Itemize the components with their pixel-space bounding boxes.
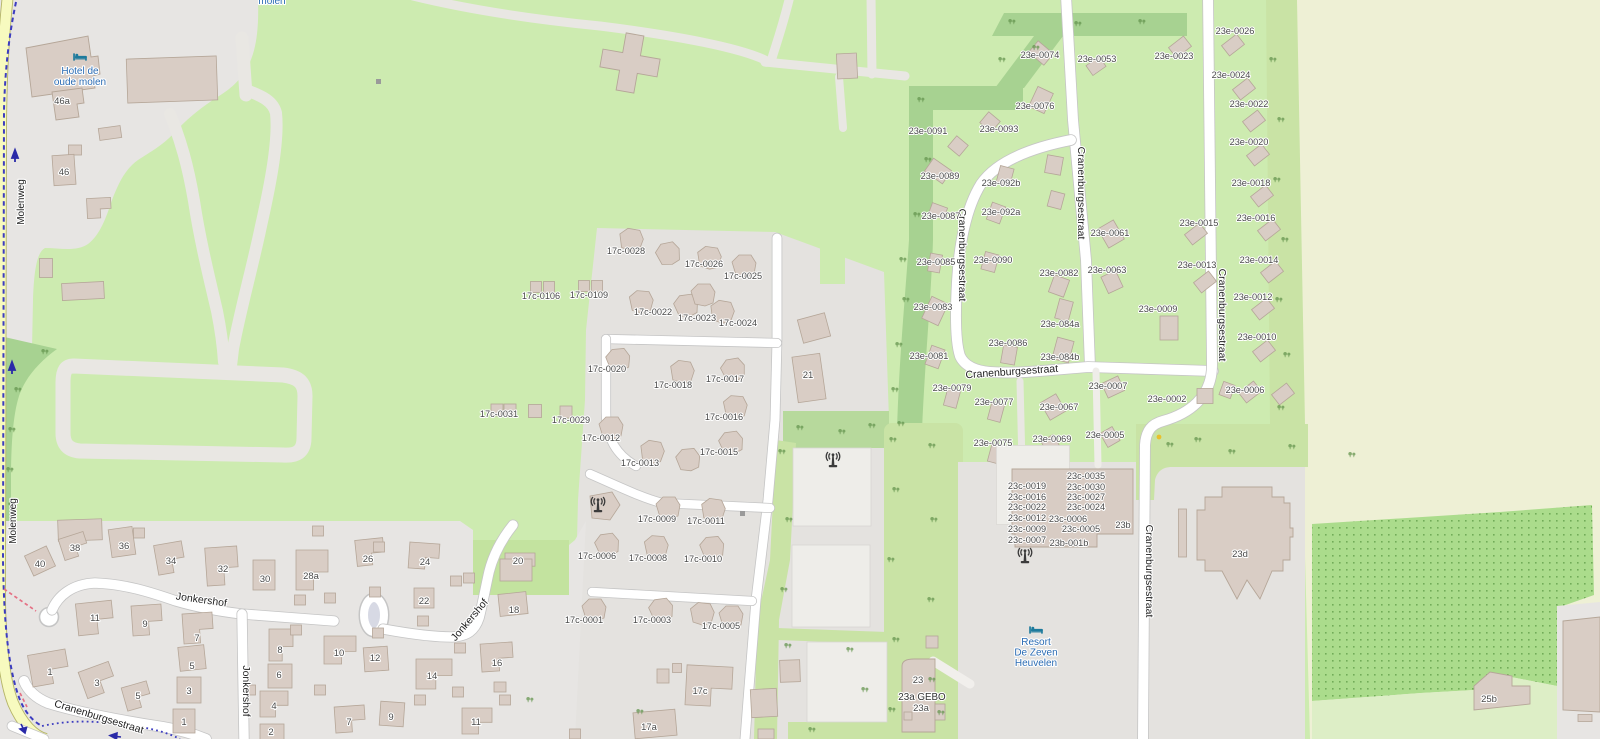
svg-text:1: 1 <box>181 717 186 728</box>
svg-text:24: 24 <box>420 557 431 568</box>
svg-text:23e-0053: 23e-0053 <box>1078 54 1117 64</box>
svg-text:38: 38 <box>70 543 81 554</box>
svg-text:17a: 17a <box>641 721 657 732</box>
svg-text:23e-0012: 23e-0012 <box>1234 292 1273 302</box>
svg-text:23c-0012: 23c-0012 <box>1008 513 1046 523</box>
svg-text:23e-0076: 23e-0076 <box>1016 101 1055 111</box>
svg-text:23e-084b: 23e-084b <box>1041 352 1080 362</box>
svg-text:9: 9 <box>142 619 147 630</box>
svg-text:17c-0031: 17c-0031 <box>480 409 518 419</box>
svg-text:23c-0005: 23c-0005 <box>1062 524 1100 534</box>
svg-text:23e-092a: 23e-092a <box>982 207 1022 217</box>
svg-text:12: 12 <box>370 653 381 664</box>
svg-text:23e-0020: 23e-0020 <box>1230 137 1269 147</box>
svg-text:23e-0024: 23e-0024 <box>1212 70 1251 80</box>
svg-text:23e-0002: 23e-0002 <box>1148 394 1187 404</box>
svg-text:21: 21 <box>803 370 814 381</box>
svg-text:23c-0009: 23c-0009 <box>1008 524 1046 534</box>
svg-text:17c-0020: 17c-0020 <box>588 364 626 374</box>
svg-text:11: 11 <box>90 613 100 624</box>
svg-text:1: 1 <box>47 667 52 678</box>
svg-text:23e-0006: 23e-0006 <box>1226 385 1265 395</box>
svg-text:3: 3 <box>186 686 191 697</box>
svg-text:6: 6 <box>276 670 281 681</box>
svg-text:23e-0022: 23e-0022 <box>1230 99 1269 109</box>
svg-text:17c-0022: 17c-0022 <box>634 307 672 317</box>
svg-text:molen: molen <box>258 0 285 7</box>
svg-text:8: 8 <box>277 645 282 656</box>
svg-text:7: 7 <box>346 717 351 728</box>
svg-text:23c-0030: 23c-0030 <box>1067 482 1105 492</box>
svg-text:23e-0013: 23e-0013 <box>1178 260 1217 270</box>
svg-text:32: 32 <box>218 564 229 575</box>
svg-text:17c-0028: 17c-0028 <box>607 246 645 256</box>
svg-text:17c-0017: 17c-0017 <box>706 374 744 384</box>
svg-text:17c-0011: 17c-0011 <box>687 516 725 526</box>
svg-text:17c-0012: 17c-0012 <box>582 433 620 443</box>
svg-text:23a GEBO: 23a GEBO <box>898 692 946 703</box>
svg-text:Resort: Resort <box>1021 637 1051 648</box>
svg-text:14: 14 <box>427 671 438 682</box>
svg-text:23e-0007: 23e-0007 <box>1089 381 1128 391</box>
svg-text:23c-0016: 23c-0016 <box>1008 492 1046 502</box>
svg-text:28a: 28a <box>303 571 320 582</box>
svg-text:46: 46 <box>59 167 70 178</box>
svg-text:17c-0001: 17c-0001 <box>565 615 603 625</box>
svg-text:40: 40 <box>35 559 46 570</box>
svg-text:23e-0067: 23e-0067 <box>1040 402 1079 412</box>
svg-text:23e-0016: 23e-0016 <box>1237 213 1276 223</box>
svg-text:23e-0075: 23e-0075 <box>974 438 1013 448</box>
svg-text:23e-0091: 23e-0091 <box>909 126 948 136</box>
svg-text:23e-0077: 23e-0077 <box>975 397 1014 407</box>
svg-text:23e-0093: 23e-0093 <box>980 124 1019 134</box>
svg-text:23c-0006: 23c-0006 <box>1049 514 1087 524</box>
svg-text:23c-0007: 23c-0007 <box>1008 535 1046 545</box>
svg-text:25b: 25b <box>1481 694 1497 705</box>
svg-text:23e-0014: 23e-0014 <box>1240 255 1279 265</box>
svg-text:Jonkershof: Jonkershof <box>240 665 252 716</box>
svg-text:17c-0006: 17c-0006 <box>578 551 616 561</box>
svg-text:20: 20 <box>513 556 524 567</box>
svg-text:7: 7 <box>194 633 199 644</box>
svg-text:46a: 46a <box>54 96 71 107</box>
svg-text:23e-0005: 23e-0005 <box>1086 430 1125 440</box>
svg-text:23e-0010: 23e-0010 <box>1238 332 1277 342</box>
svg-text:16: 16 <box>492 658 503 669</box>
svg-text:23c-0022: 23c-0022 <box>1008 502 1046 512</box>
svg-text:23b-001b: 23b-001b <box>1050 538 1089 548</box>
svg-text:Cranenburgsestraat: Cranenburgsestraat <box>956 209 968 302</box>
svg-text:2: 2 <box>268 727 273 738</box>
svg-text:17c-0029: 17c-0029 <box>552 415 590 425</box>
svg-text:Hotel de: Hotel de <box>61 66 99 77</box>
svg-text:17c-0015: 17c-0015 <box>700 447 738 457</box>
svg-text:Molenweg: Molenweg <box>8 498 19 544</box>
svg-text:5: 5 <box>135 691 140 702</box>
svg-text:oude molen: oude molen <box>54 77 106 88</box>
svg-text:23e-0063: 23e-0063 <box>1088 265 1127 275</box>
svg-text:23e-0083: 23e-0083 <box>914 302 953 312</box>
svg-text:22: 22 <box>419 596 430 607</box>
svg-text:17c-0005: 17c-0005 <box>702 621 740 631</box>
svg-text:23e-0061: 23e-0061 <box>1091 228 1130 238</box>
svg-text:23e-0085: 23e-0085 <box>917 257 956 267</box>
svg-text:17c: 17c <box>692 685 707 696</box>
svg-text:23e-0086: 23e-0086 <box>989 338 1028 348</box>
svg-text:17c-0025: 17c-0025 <box>724 271 762 281</box>
svg-text:5: 5 <box>189 661 194 672</box>
svg-text:23e-0074: 23e-0074 <box>1021 50 1060 60</box>
svg-text:Cranenburgsestraat: Cranenburgsestraat <box>1075 147 1087 240</box>
svg-text:23e-0082: 23e-0082 <box>1040 268 1079 278</box>
svg-text:23e-0023: 23e-0023 <box>1155 51 1194 61</box>
svg-text:23a: 23a <box>913 703 930 714</box>
svg-text:18: 18 <box>509 605 520 616</box>
svg-text:17c-0109: 17c-0109 <box>570 290 608 300</box>
svg-text:Cranenburgsestraat: Cranenburgsestraat <box>1143 525 1155 618</box>
svg-text:4: 4 <box>271 701 276 712</box>
svg-text:17c-0106: 17c-0106 <box>522 291 560 301</box>
svg-text:17c-0010: 17c-0010 <box>684 554 722 564</box>
svg-text:23: 23 <box>913 675 924 686</box>
svg-text:17c-0013: 17c-0013 <box>621 458 659 468</box>
svg-text:23e-0009: 23e-0009 <box>1139 304 1178 314</box>
svg-text:Cranenburgsestraat: Cranenburgsestraat <box>1216 269 1228 362</box>
svg-text:11: 11 <box>471 717 481 728</box>
svg-text:23c-0019: 23c-0019 <box>1008 481 1046 491</box>
svg-text:23c-0027: 23c-0027 <box>1067 492 1105 502</box>
svg-text:17c-0008: 17c-0008 <box>629 553 667 563</box>
svg-text:23e-0079: 23e-0079 <box>933 383 972 393</box>
svg-text:Heuvelen: Heuvelen <box>1015 658 1057 669</box>
svg-text:17c-0018: 17c-0018 <box>654 380 692 390</box>
svg-text:34: 34 <box>166 556 177 567</box>
svg-text:23e-0069: 23e-0069 <box>1033 434 1072 444</box>
svg-text:26: 26 <box>363 554 374 565</box>
svg-text:23c-0035: 23c-0035 <box>1067 471 1105 481</box>
svg-text:23c-0024: 23c-0024 <box>1067 502 1105 512</box>
svg-text:17c-0026: 17c-0026 <box>685 259 723 269</box>
svg-text:10: 10 <box>334 648 345 659</box>
svg-text:23e-084a: 23e-084a <box>1041 319 1081 329</box>
svg-text:23e-0089: 23e-0089 <box>921 171 960 181</box>
svg-text:23e-0081: 23e-0081 <box>910 351 949 361</box>
svg-text:3: 3 <box>94 678 99 689</box>
svg-text:De Zeven: De Zeven <box>1014 648 1057 659</box>
svg-text:Molenweg: Molenweg <box>16 179 27 225</box>
svg-text:17c-0009: 17c-0009 <box>638 514 676 524</box>
svg-text:36: 36 <box>119 541 130 552</box>
svg-text:23e-0026: 23e-0026 <box>1216 26 1255 36</box>
svg-text:17c-0023: 17c-0023 <box>678 313 716 323</box>
svg-text:23d: 23d <box>1232 549 1248 560</box>
svg-text:23e-0018: 23e-0018 <box>1232 178 1271 188</box>
svg-text:23e-0090: 23e-0090 <box>974 255 1013 265</box>
svg-text:17c-0016: 17c-0016 <box>705 412 743 422</box>
svg-text:17c-0024: 17c-0024 <box>719 318 757 328</box>
svg-text:17c-0003: 17c-0003 <box>633 615 671 625</box>
svg-text:23e-0087: 23e-0087 <box>922 211 961 221</box>
svg-text:30: 30 <box>260 574 271 585</box>
svg-text:23e-092b: 23e-092b <box>982 178 1021 188</box>
svg-text:23b: 23b <box>1115 520 1130 530</box>
svg-text:23e-0015: 23e-0015 <box>1180 218 1219 228</box>
svg-text:9: 9 <box>388 712 393 723</box>
